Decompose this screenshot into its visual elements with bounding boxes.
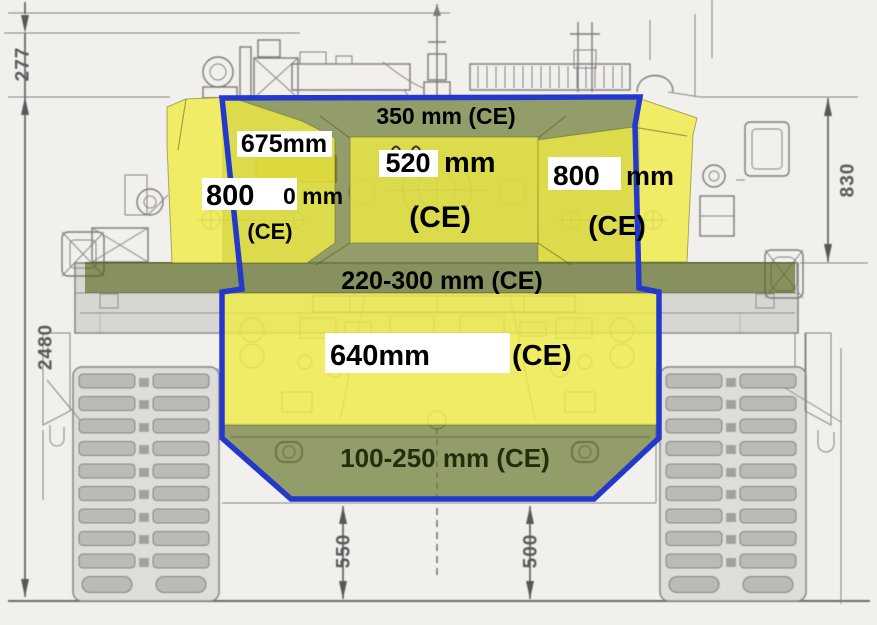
mantlet-value: 520 <box>385 148 430 178</box>
dimension-830: 830 <box>838 163 859 198</box>
hull-front-ce: (CE) <box>512 340 572 372</box>
hull-top-label: 220-300 mm (CE) <box>341 267 542 295</box>
lower-glacis-label: 100-250 mm (CE) <box>340 443 550 473</box>
dimension-277: 277 <box>13 47 34 82</box>
right-cheek-ce: (CE) <box>588 210 646 241</box>
turret-roof-label: 350 mm (CE) <box>376 103 515 129</box>
left-cheek-upper-label: 675mm <box>241 130 327 158</box>
dimension-500: 500 <box>521 534 542 569</box>
armor-diagram-page: 277 2480 830 550 500 350 mm (CE) 675mm 8… <box>0 0 877 625</box>
dimension-2480: 2480 <box>36 324 57 370</box>
tank-armor-diagram: 277 2480 830 550 500 350 mm (CE) 675mm 8… <box>0 0 877 625</box>
mantlet-unit: mm <box>444 147 496 179</box>
right-cheek-value: 800 <box>553 160 600 191</box>
hull-front-value: 640mm <box>330 340 430 372</box>
left-cheek-value: 800 <box>206 180 254 212</box>
mantlet-ce: (CE) <box>409 201 471 234</box>
right-cheek-unit: mm <box>626 161 674 191</box>
left-cheek-ce: (CE) <box>247 219 292 244</box>
left-cheek-remnant: 0 mm <box>283 183 343 209</box>
dimension-550: 550 <box>334 534 355 569</box>
